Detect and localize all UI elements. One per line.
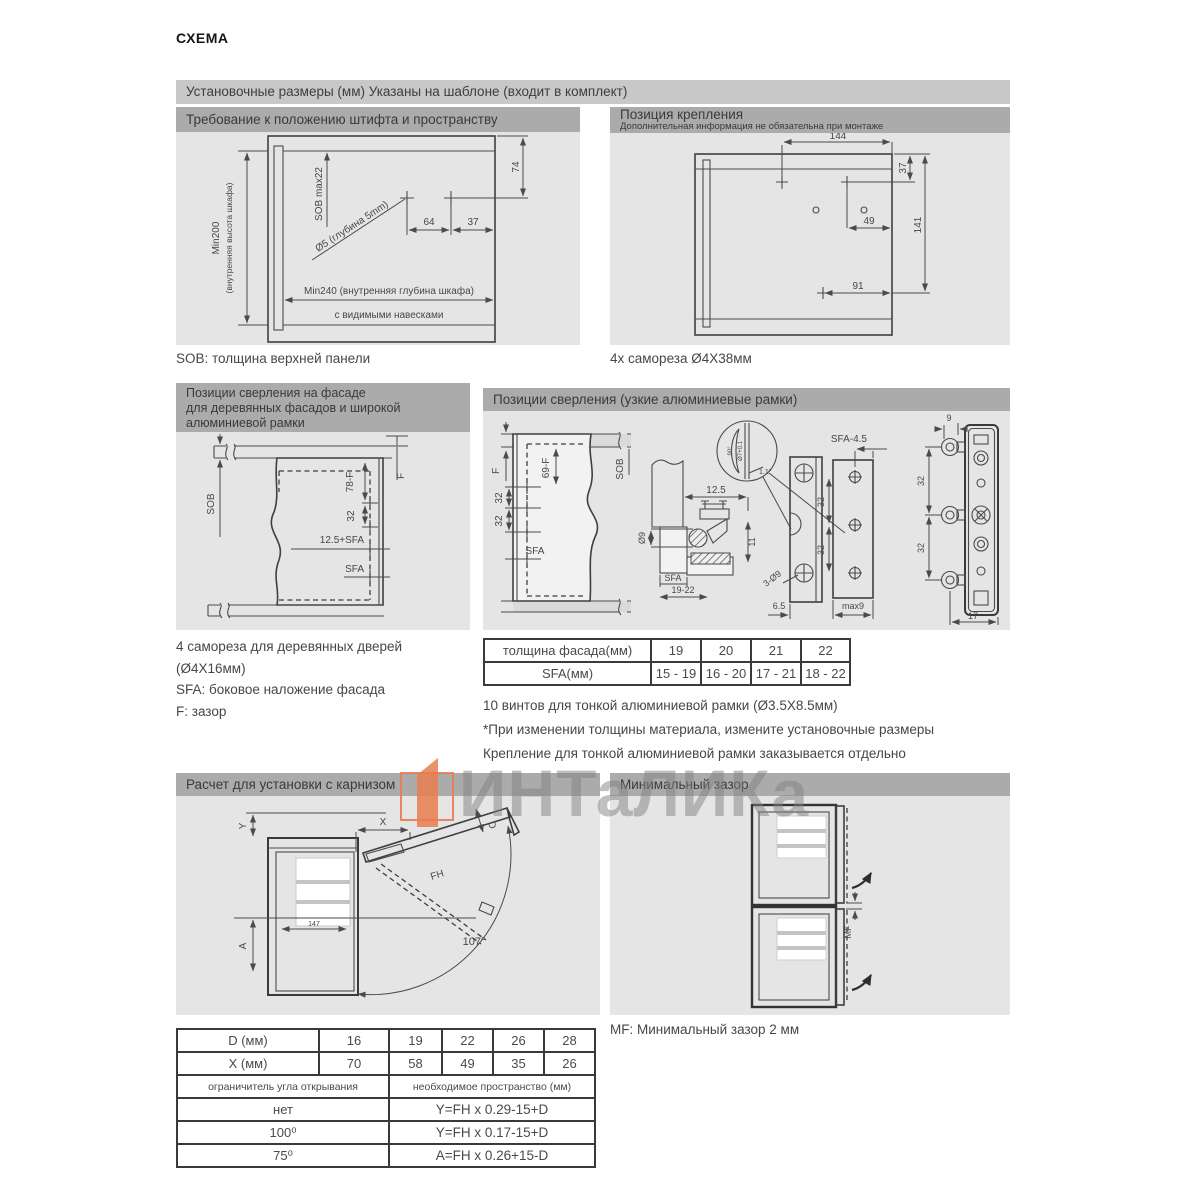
cell: 16 - 20 — [701, 662, 751, 685]
label-d-69f: 69-F — [541, 458, 552, 479]
label-49: 49 — [863, 216, 875, 227]
label-d-32c: 32 — [816, 497, 826, 507]
cell: 26 — [544, 1052, 595, 1075]
cell-x-label: X (мм) — [177, 1052, 319, 1075]
label-e-147: 147 — [308, 921, 320, 928]
table-row: 100⁰ Y=FH x 0.17-15+D — [177, 1121, 595, 1144]
cell: 15 - 19 — [651, 662, 701, 685]
cell: 17 - 21 — [751, 662, 801, 685]
cell: 58 — [389, 1052, 442, 1075]
label-min240: Min240 (внутренняя глубина шкафа) — [304, 285, 474, 297]
cell: 35 — [493, 1052, 544, 1075]
caption-wood-screws-size: (Ø4X16мм) — [176, 658, 402, 680]
table-row: X (мм) 70 58 49 35 26 — [177, 1052, 595, 1075]
panel-a-header: Требование к положению штифта и простран… — [176, 107, 580, 132]
label-d-11: 11 — [747, 537, 757, 546]
watermark-logo — [396, 754, 460, 839]
panel-c-header-line3: алюминиевой рамки — [186, 416, 470, 431]
label-d-n9: 9 — [946, 413, 951, 423]
label-91: 91 — [852, 281, 864, 292]
panel-b-caption: 4x самореза Ø4X38мм — [610, 351, 752, 366]
label-c-sfa: SFA — [345, 564, 364, 575]
label-d-32a: 32 — [494, 492, 505, 504]
label-c-78f: 78-F — [345, 472, 356, 493]
label-64: 64 — [423, 217, 435, 228]
cell-sfa-label: SFA(мм) — [484, 662, 651, 685]
panel-d-header: Позиции сверления (узкие алюминиевые рам… — [483, 388, 1010, 411]
label-sob-max22: SOB max22 — [314, 167, 325, 221]
label-e-a: A — [238, 942, 249, 949]
label-d-dia9: Ø9 — [637, 532, 647, 544]
table-row: D (мм) 16 19 22 26 28 — [177, 1029, 595, 1052]
label-d-32d: 32 — [816, 545, 826, 555]
cell: 18 - 22 — [801, 662, 850, 685]
label-144: 144 — [830, 133, 847, 142]
cell-d-label: D (мм) — [177, 1029, 319, 1052]
cell: 16 — [319, 1029, 389, 1052]
caption-sfa-definition: SFA: боковое наложение фасада — [176, 679, 402, 701]
panel-c-header-line1: Позиции сверления на фасаде — [186, 386, 470, 401]
label-e-y: Y — [238, 822, 249, 829]
cell-limiter-75: 75⁰ — [177, 1144, 389, 1167]
label-e-107: 107° — [463, 936, 486, 948]
table-row: толщина фасада(мм) 19 20 21 22 — [484, 639, 850, 662]
cell: 22 — [801, 639, 850, 662]
cell-space-header: необходимое пространство (мм) — [389, 1075, 595, 1098]
banner-install-sizes: Установочные размеры (мм) Указаны на шаб… — [176, 80, 1010, 104]
panel-c-body: SOB F 78-F 32 12.5+SFA SFA — [176, 432, 470, 630]
cell: 20 — [701, 639, 751, 662]
cell: 19 — [389, 1029, 442, 1052]
cell: 28 — [544, 1029, 595, 1052]
cell: 19 — [651, 639, 701, 662]
cell-limiter-100: 100⁰ — [177, 1121, 389, 1144]
caption-wood-screws: 4 самореза для деревянных дверей — [176, 636, 402, 658]
note-material-change: *При изменении толщины материала, измени… — [483, 718, 934, 742]
table-row: 75⁰ A=FH x 0.26+15-D — [177, 1144, 595, 1167]
cell: 21 — [751, 639, 801, 662]
table-row: нет Y=FH x 0.29-15+D — [177, 1098, 595, 1121]
label-37: 37 — [467, 217, 479, 228]
panel-a-body: Min200 (внутренняя высота шкафа) SOB max… — [176, 132, 580, 345]
label-d-90deg: 90° — [728, 446, 734, 456]
cell: 22 — [442, 1029, 493, 1052]
label-74: 74 — [511, 161, 522, 173]
cell-limiter-header: ограничитель угла открывания — [177, 1075, 389, 1098]
note-thin-frame-screws: 10 винтов для тонкой алюминиевой рамки (… — [483, 694, 934, 718]
cell-limiter-none: нет — [177, 1098, 389, 1121]
label-d-max9: max9 — [842, 601, 864, 611]
label-d-11deg: 1.1° — [759, 468, 772, 476]
watermark-text: ИНТаЛИКа — [459, 760, 809, 826]
label-d-1922: 19-22 — [671, 585, 694, 595]
brand-logo-icon — [396, 754, 460, 834]
label-c-sob: SOB — [206, 493, 217, 514]
cell: 70 — [319, 1052, 389, 1075]
panel-b-subtitle: Дополнительная информация не обязательна… — [620, 122, 1010, 132]
cell-formula: A=FH x 0.26+15-D — [389, 1144, 595, 1167]
label-d-65: 6.5 — [773, 601, 786, 611]
sfa-thickness-table: толщина фасада(мм) 19 20 21 22 SFA(мм) 1… — [483, 638, 851, 686]
label-d-32f: 32 — [916, 543, 926, 553]
label-f-mf: MF — [843, 925, 853, 938]
table-row: SFA(мм) 15 - 19 16 - 20 17 - 21 18 - 22 — [484, 662, 850, 685]
panel-b-header: Позиция крепления Дополнительная информа… — [610, 107, 1010, 133]
label-d-sfa2: SFA — [664, 573, 681, 583]
cell-thickness-label: толщина фасада(мм) — [484, 639, 651, 662]
label-c-f: F — [396, 473, 407, 479]
cell: 49 — [442, 1052, 493, 1075]
page-title: СХЕМА — [176, 30, 229, 46]
drawing-narrow-alu-frames: F 69-F SOB 32 32 SFA 12.5 Ø9 11 — [483, 411, 1010, 630]
panel-f-caption: MF: Минимальный зазор 2 мм — [610, 1022, 799, 1037]
panel-c-header: Позиции сверления на фасаде для деревянн… — [176, 383, 470, 432]
drawing-facade-drilling-wood: SOB F 78-F 32 12.5+SFA SFA — [176, 432, 470, 630]
label-d-17: 17 — [968, 611, 978, 621]
cell-formula: Y=FH x 0.29-15+D — [389, 1098, 595, 1121]
label-c-125sfa: 12.5+SFA — [320, 535, 365, 546]
label-e-fh: FH — [429, 868, 445, 882]
label-e-x: X — [380, 817, 387, 828]
label-d-dia7: Ø7+0.1 — [738, 440, 744, 461]
label-37b: 37 — [898, 162, 909, 174]
label-d-sfa45: SFA-4.5 — [831, 434, 868, 445]
drawing-mount-position: 144 49 37 141 91 — [610, 133, 1010, 345]
panel-c-header-line2: для деревянных фасадов и широкой — [186, 401, 470, 416]
label-c-32: 32 — [346, 510, 357, 522]
panel-b-body: 144 49 37 141 91 — [610, 133, 1010, 345]
cell: 26 — [493, 1029, 544, 1052]
cell-formula: Y=FH x 0.17-15+D — [389, 1121, 595, 1144]
opening-angle-table: D (мм) 16 19 22 26 28 X (мм) 70 58 49 35… — [176, 1028, 596, 1168]
label-141: 141 — [913, 216, 924, 233]
label-d-32b: 32 — [494, 515, 505, 527]
panel-c-captions: 4 самореза для деревянных дверей (Ø4X16м… — [176, 636, 402, 722]
caption-f-definition: F: зазор — [176, 701, 402, 723]
label-d-f: F — [491, 468, 502, 474]
panel-a-caption: SOB: толщина верхней панели — [176, 351, 370, 366]
panel-b-title: Позиция крепления — [620, 107, 1010, 122]
label-d-125: 12.5 — [706, 485, 726, 496]
label-visible-hinges: с видимыми навесками — [335, 310, 444, 321]
panel-d-body: F 69-F SOB 32 32 SFA 12.5 Ø9 11 — [483, 411, 1010, 630]
drawing-pin-position: Min200 (внутренняя высота шкафа) SOB max… — [176, 132, 580, 345]
table-row: ограничитель угла открывания необходимое… — [177, 1075, 595, 1098]
label-d-sfa1: SFA — [526, 546, 545, 557]
label-d-32e: 32 — [916, 476, 926, 486]
label-d-3dia9: 3-Ø9 — [761, 569, 783, 589]
label-min200: Min200 — [211, 221, 222, 254]
label-d-sob: SOB — [615, 458, 626, 479]
label-min200-sub: (внутренняя высота шкафа) — [224, 182, 234, 293]
